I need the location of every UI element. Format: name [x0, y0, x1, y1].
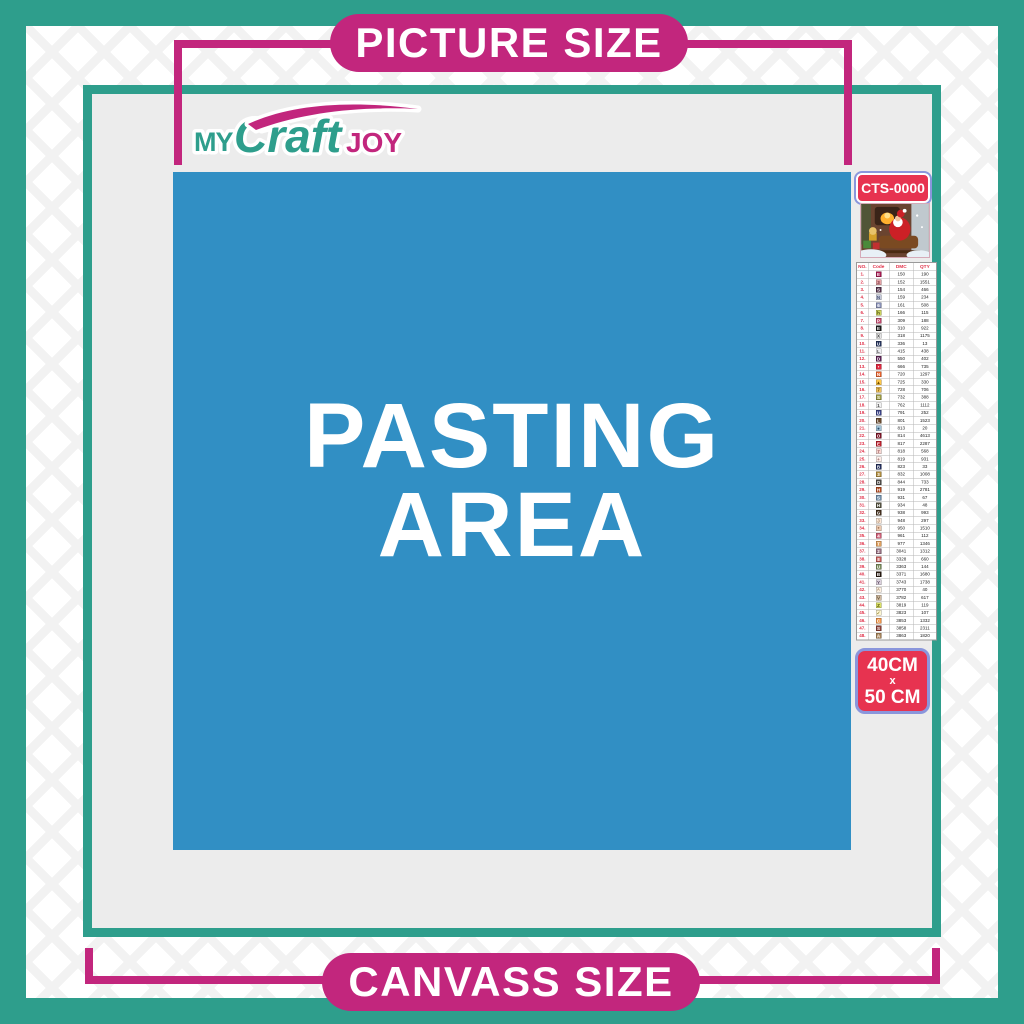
symbol-swatch: E — [876, 325, 882, 331]
col-header-no: NO. — [857, 263, 869, 271]
row-symbol-cell: S — [868, 394, 889, 402]
row-symbol-cell: N — [868, 294, 889, 302]
row-symbol-cell: * — [868, 524, 889, 532]
magenta-line-bottom-right-h — [698, 976, 940, 984]
dmc-table-row: 42. ^ 3770 40 — [857, 586, 937, 594]
col-header-code: Code — [868, 263, 889, 271]
row-symbol-cell: T — [868, 540, 889, 548]
symbol-swatch: Z — [876, 602, 882, 608]
row-dmc-code: 336 — [889, 340, 914, 348]
row-quantity: 48 — [914, 501, 937, 509]
dmc-table-row: 40. B 3371 1680 — [857, 571, 937, 579]
dmc-table-row: 13. • 666 735 — [857, 363, 937, 371]
row-quantity: 993 — [914, 509, 937, 517]
dmc-table-row: 19. U 791 252 — [857, 409, 937, 417]
dmc-table-row: 17. S 732 388 — [857, 394, 937, 402]
row-dmc-code: 720 — [889, 371, 914, 379]
row-quantity: 119 — [914, 601, 937, 609]
row-symbol-cell: U — [868, 563, 889, 571]
dmc-table-row: 35. 4 961 112 — [857, 532, 937, 540]
symbol-swatch: * — [876, 526, 882, 532]
row-symbol-cell: 6 — [868, 301, 889, 309]
row-symbol-cell: 7 — [868, 447, 889, 455]
pasting-area-line2: AREA — [378, 481, 647, 570]
symbol-swatch: T — [876, 541, 882, 547]
row-symbol-cell: S — [868, 286, 889, 294]
row-symbol-cell: L — [868, 347, 889, 355]
product-sheet: PICTURE SIZE CANVASS SIZE MY Craft JOY P… — [0, 0, 1024, 1024]
row-number: 24. — [857, 447, 869, 455]
symbol-swatch: + — [876, 456, 882, 462]
row-quantity: 466 — [914, 286, 937, 294]
symbol-swatch: 3 — [876, 279, 882, 285]
row-quantity: 1551 — [914, 278, 937, 286]
row-symbol-cell: C — [868, 617, 889, 625]
symbol-swatch: 4 — [876, 533, 882, 539]
row-number: 42. — [857, 586, 869, 594]
row-quantity: 660 — [914, 555, 937, 563]
dmc-table-row: 22. O 814 4613 — [857, 432, 937, 440]
dmc-table-row: 6. h 166 115 — [857, 309, 937, 317]
dmc-table-row: 7. P 309 188 — [857, 317, 937, 325]
row-number: 23. — [857, 440, 869, 448]
row-number: 45. — [857, 609, 869, 617]
row-number: 21. — [857, 424, 869, 432]
row-quantity: 922 — [914, 324, 937, 332]
row-number: 26. — [857, 463, 869, 471]
picture-size-label: PICTURE SIZE — [355, 19, 662, 67]
row-symbol-cell: 3 — [868, 278, 889, 286]
row-symbol-cell: H — [868, 486, 889, 494]
symbol-swatch: S — [876, 626, 882, 632]
row-quantity: 2287 — [914, 440, 937, 448]
row-number: 38. — [857, 555, 869, 563]
dmc-table-row: 14. N 720 1297 — [857, 371, 937, 379]
row-number: 2. — [857, 278, 869, 286]
row-quantity: 438 — [914, 347, 937, 355]
row-number: 28. — [857, 478, 869, 486]
canvass-size-banner: CANVASS SIZE — [322, 953, 700, 1011]
dmc-table-row: 11. L 415 438 — [857, 347, 937, 355]
row-quantity: 1297 — [914, 371, 937, 379]
row-quantity: 40 — [914, 586, 937, 594]
row-symbol-cell: • — [868, 363, 889, 371]
row-quantity: 112 — [914, 532, 937, 540]
row-symbol-cell: ● — [868, 424, 889, 432]
pasting-area-line1: PASTING — [304, 392, 720, 481]
dmc-table-row: 41. Y 3743 1738 — [857, 578, 937, 586]
size-height-label: 50 CM — [865, 688, 921, 707]
row-dmc-code: 950 — [889, 524, 914, 532]
row-dmc-code: 934 — [889, 501, 914, 509]
row-dmc-code: 813 — [889, 424, 914, 432]
row-symbol-cell: L — [868, 417, 889, 425]
dmc-table-row: 39. U 3363 144 — [857, 563, 937, 571]
row-dmc-code: 732 — [889, 394, 914, 402]
row-symbol-cell: S — [868, 624, 889, 632]
row-quantity: 508 — [914, 301, 937, 309]
row-number: 33. — [857, 517, 869, 525]
row-number: 34. — [857, 524, 869, 532]
row-dmc-code: 814 — [889, 432, 914, 440]
magenta-line-top-left-v — [174, 40, 182, 165]
row-quantity: 1523 — [914, 417, 937, 425]
logo-text-joy: JOY — [346, 127, 402, 158]
symbol-swatch: Y — [876, 579, 882, 585]
row-symbol-cell: E — [868, 440, 889, 448]
magenta-line-bottom-right-v — [932, 948, 940, 984]
dmc-table-row: 9. X 318 1175 — [857, 332, 937, 340]
row-symbol-cell: ▲ — [868, 378, 889, 386]
row-number: 22. — [857, 432, 869, 440]
symbol-swatch: 7 — [876, 387, 882, 393]
symbol-swatch: N — [876, 295, 882, 301]
dmc-table-row: 21. ● 813 20 — [857, 424, 937, 432]
symbol-swatch: A — [876, 633, 882, 639]
symbol-swatch: C — [876, 618, 882, 624]
dmc-table: NO. Code DMC QTY 1. E 150 190 2. 3 152 1… — [856, 262, 937, 640]
dmc-table-row: 18. 1 762 1112 — [857, 401, 937, 409]
row-number: 37. — [857, 548, 869, 556]
symbol-swatch: X — [876, 333, 882, 339]
row-quantity: 1680 — [914, 571, 937, 579]
row-dmc-code: 3371 — [889, 571, 914, 579]
row-quantity: 234 — [914, 294, 937, 302]
row-number: 18. — [857, 401, 869, 409]
row-dmc-code: 844 — [889, 478, 914, 486]
symbol-swatch: P — [876, 318, 882, 324]
row-dmc-code: 3823 — [889, 609, 914, 617]
row-number: 14. — [857, 371, 869, 379]
row-number: 32. — [857, 509, 869, 517]
dmc-table-row: 15. ▲ 725 330 — [857, 378, 937, 386]
row-number: 31. — [857, 501, 869, 509]
color-chart: NO. Code DMC QTY 1. E 150 190 2. 3 152 1… — [856, 262, 936, 646]
symbol-swatch: B — [876, 464, 882, 470]
magenta-line-bottom-left-h — [85, 976, 324, 984]
row-number: 15. — [857, 378, 869, 386]
row-quantity: 1332 — [914, 617, 937, 625]
row-symbol-cell: X — [868, 332, 889, 340]
row-quantity: 190 — [914, 271, 937, 279]
logo-text-my: MY — [194, 127, 233, 157]
dmc-table-row: 36. T 977 1346 — [857, 540, 937, 548]
symbol-swatch: ▲ — [876, 379, 882, 385]
dmc-table-row: 4. N 159 234 — [857, 294, 937, 302]
symbol-swatch: ● — [876, 426, 882, 432]
dmc-table-row: 26. B 823 33 — [857, 463, 937, 471]
dmc-table-row: 24. 7 818 568 — [857, 447, 937, 455]
row-dmc-code: 3363 — [889, 563, 914, 571]
row-dmc-code: 791 — [889, 409, 914, 417]
row-symbol-cell: S — [868, 494, 889, 502]
row-symbol-cell: h — [868, 309, 889, 317]
dmc-table-row: 10. U 336 13 — [857, 340, 937, 348]
row-symbol-cell: + — [868, 455, 889, 463]
row-dmc-code: 3770 — [889, 586, 914, 594]
dmc-table-row: 45. ✓ 3823 107 — [857, 609, 937, 617]
row-symbol-cell: U — [868, 409, 889, 417]
symbol-swatch: ^ — [876, 587, 882, 593]
symbol-swatch: 7 — [876, 449, 882, 455]
col-header-dmc: DMC — [889, 263, 914, 271]
row-symbol-cell: A — [868, 632, 889, 640]
row-number: 44. — [857, 601, 869, 609]
row-symbol-cell: Z — [868, 601, 889, 609]
row-dmc-code: 166 — [889, 309, 914, 317]
row-dmc-code: 832 — [889, 471, 914, 479]
dmc-table-row: 31. H 934 48 — [857, 501, 937, 509]
symbol-swatch: S — [876, 287, 882, 293]
row-symbol-cell: ^ — [868, 586, 889, 594]
row-symbol-cell: Y — [868, 578, 889, 586]
row-quantity: 330 — [914, 378, 937, 386]
row-dmc-code: 823 — [889, 463, 914, 471]
symbol-swatch: U — [876, 564, 882, 570]
row-quantity: 1312 — [914, 548, 937, 556]
row-quantity: 252 — [914, 409, 937, 417]
row-quantity: 2311 — [914, 624, 937, 632]
row-symbol-cell: 4 — [868, 532, 889, 540]
row-dmc-code: 3863 — [889, 632, 914, 640]
canvass-size-label: CANVASS SIZE — [348, 958, 673, 1006]
row-symbol-cell: P — [868, 317, 889, 325]
row-symbol-cell: 3 — [868, 471, 889, 479]
row-quantity: 1820 — [914, 632, 937, 640]
symbol-swatch: S — [876, 495, 882, 501]
row-quantity: 144 — [914, 563, 937, 571]
row-quantity: 2781 — [914, 486, 937, 494]
dmc-table-row: 3. S 154 466 — [857, 286, 937, 294]
row-number: 30. — [857, 494, 869, 502]
row-number: 6. — [857, 309, 869, 317]
row-number: 39. — [857, 563, 869, 571]
row-dmc-code: 919 — [889, 486, 914, 494]
dmc-table-row: 8. E 310 922 — [857, 324, 937, 332]
symbol-swatch: U — [876, 341, 882, 347]
picture-size-banner: PICTURE SIZE — [330, 14, 688, 72]
row-number: 10. — [857, 340, 869, 348]
dmc-table-row: 46. C 3853 1332 — [857, 617, 937, 625]
symbol-swatch: O — [876, 479, 882, 485]
row-number: 27. — [857, 471, 869, 479]
row-quantity: 67 — [914, 494, 937, 502]
row-quantity: 733 — [914, 478, 937, 486]
symbol-swatch: V — [876, 595, 882, 601]
row-symbol-cell: V — [868, 594, 889, 602]
row-dmc-code: 762 — [889, 401, 914, 409]
dmc-table-row: 16. 7 728 706 — [857, 386, 937, 394]
symbol-swatch: U — [876, 410, 882, 416]
row-number: 12. — [857, 355, 869, 363]
symbol-swatch: B — [876, 572, 882, 578]
row-symbol-cell: N — [868, 371, 889, 379]
row-symbol-cell: D — [868, 355, 889, 363]
row-number: 17. — [857, 394, 869, 402]
row-symbol-cell: G — [868, 509, 889, 517]
row-quantity: 568 — [914, 447, 937, 455]
symbol-swatch: N — [876, 372, 882, 378]
row-dmc-code: 152 — [889, 278, 914, 286]
row-symbol-cell: E — [868, 324, 889, 332]
row-symbol-cell: E — [868, 271, 889, 279]
row-quantity: 4613 — [914, 432, 937, 440]
dmc-table-row: 12. D 550 402 — [857, 355, 937, 363]
row-number: 40. — [857, 571, 869, 579]
symbol-swatch: 2 — [876, 549, 882, 555]
dmc-table-row: 23. E 817 2287 — [857, 440, 937, 448]
dmc-table-row: 33. J 948 297 — [857, 517, 937, 525]
row-symbol-cell: B — [868, 463, 889, 471]
row-dmc-code: 161 — [889, 301, 914, 309]
row-number: 43. — [857, 594, 869, 602]
row-quantity: 115 — [914, 309, 937, 317]
row-number: 5. — [857, 301, 869, 309]
row-quantity: 1112 — [914, 401, 937, 409]
row-symbol-cell: 7 — [868, 386, 889, 394]
symbol-swatch: H — [876, 487, 882, 493]
symbol-swatch: E — [876, 441, 882, 447]
row-symbol-cell: H — [868, 501, 889, 509]
row-quantity: 1510 — [914, 524, 937, 532]
row-dmc-code: 938 — [889, 509, 914, 517]
dmc-table-row: 5. 6 161 508 — [857, 301, 937, 309]
row-dmc-code: 819 — [889, 455, 914, 463]
row-number: 36. — [857, 540, 869, 548]
row-quantity: 13 — [914, 340, 937, 348]
magenta-line-top-right-h — [686, 40, 852, 48]
symbol-swatch: H — [876, 502, 882, 508]
symbol-swatch: O — [876, 433, 882, 439]
symbol-swatch: G — [876, 510, 882, 516]
row-quantity: 706 — [914, 386, 937, 394]
row-number: 8. — [857, 324, 869, 332]
row-dmc-code: 961 — [889, 532, 914, 540]
row-dmc-code: 310 — [889, 324, 914, 332]
row-dmc-code: 3743 — [889, 578, 914, 586]
row-quantity: 20 — [914, 424, 937, 432]
symbol-swatch: L — [876, 418, 882, 424]
dmc-table-row: 25. + 819 931 — [857, 455, 937, 463]
row-dmc-code: 728 — [889, 386, 914, 394]
row-dmc-code: 801 — [889, 417, 914, 425]
row-dmc-code: 3819 — [889, 601, 914, 609]
row-quantity: 617 — [914, 594, 937, 602]
dmc-table-row: 30. S 931 67 — [857, 494, 937, 502]
row-symbol-cell: O — [868, 432, 889, 440]
row-number: 25. — [857, 455, 869, 463]
magenta-line-top-left-h — [174, 40, 332, 48]
row-symbol-cell: B — [868, 571, 889, 579]
row-quantity: 297 — [914, 517, 937, 525]
row-quantity: 735 — [914, 363, 937, 371]
row-dmc-code: 3041 — [889, 548, 914, 556]
row-number: 19. — [857, 409, 869, 417]
row-quantity: 1175 — [914, 332, 937, 340]
row-number: 13. — [857, 363, 869, 371]
row-quantity: 931 — [914, 455, 937, 463]
row-dmc-code: 159 — [889, 294, 914, 302]
row-quantity: 1738 — [914, 578, 937, 586]
row-dmc-code: 309 — [889, 317, 914, 325]
row-dmc-code: 818 — [889, 447, 914, 455]
row-dmc-code: 550 — [889, 355, 914, 363]
row-number: 41. — [857, 578, 869, 586]
row-dmc-code: 415 — [889, 347, 914, 355]
dmc-table-row: 48. A 3863 1820 — [857, 632, 937, 640]
row-dmc-code: 150 — [889, 271, 914, 279]
row-symbol-cell: 2 — [868, 548, 889, 556]
symbol-swatch: 6 — [876, 302, 882, 308]
row-number: 11. — [857, 347, 869, 355]
dmc-table-row: 27. 3 832 1008 — [857, 471, 937, 479]
symbol-swatch: L — [876, 349, 882, 355]
dmc-table-row: 38. 8 3328 660 — [857, 555, 937, 563]
row-dmc-code: 3782 — [889, 594, 914, 602]
row-quantity: 388 — [914, 394, 937, 402]
symbol-swatch: E — [876, 272, 882, 278]
symbol-swatch: 8 — [876, 556, 882, 562]
row-number: 1. — [857, 271, 869, 279]
row-quantity: 188 — [914, 317, 937, 325]
dmc-table-body: 1. E 150 190 2. 3 152 1551 3. S 154 466 … — [857, 271, 937, 640]
dmc-table-row: 28. O 844 733 — [857, 478, 937, 486]
row-number: 4. — [857, 294, 869, 302]
row-number: 35. — [857, 532, 869, 540]
dmc-table-row: 1. E 150 190 — [857, 271, 937, 279]
row-dmc-code: 154 — [889, 286, 914, 294]
kit-artwork-thumbnail — [860, 203, 930, 258]
row-dmc-code: 318 — [889, 332, 914, 340]
row-number: 9. — [857, 332, 869, 340]
symbol-swatch: 1 — [876, 402, 882, 408]
row-dmc-code: 948 — [889, 517, 914, 525]
row-number: 29. — [857, 486, 869, 494]
sku-label: CTS-0000 — [861, 180, 925, 196]
row-quantity: 107 — [914, 609, 937, 617]
dmc-table-row: 32. G 938 993 — [857, 509, 937, 517]
symbol-swatch: h — [876, 310, 882, 316]
row-dmc-code: 666 — [889, 363, 914, 371]
symbol-swatch: S — [876, 395, 882, 401]
size-badge: 40CM x 50 CM — [855, 648, 930, 714]
row-dmc-code: 977 — [889, 540, 914, 548]
row-number: 47. — [857, 624, 869, 632]
col-header-qty: QTY — [914, 263, 937, 271]
size-width-label: 40CM — [867, 656, 918, 675]
row-symbol-cell: 1 — [868, 401, 889, 409]
sku-badge: CTS-0000 — [856, 173, 930, 203]
dmc-table-row: 43. V 3782 617 — [857, 594, 937, 602]
dmc-table-header-row: NO. Code DMC QTY — [857, 263, 937, 271]
symbol-swatch: 3 — [876, 472, 882, 478]
row-symbol-cell: J — [868, 517, 889, 525]
row-quantity: 1008 — [914, 471, 937, 479]
row-symbol-cell: ✓ — [868, 609, 889, 617]
row-quantity: 33 — [914, 463, 937, 471]
row-dmc-code: 3858 — [889, 624, 914, 632]
dmc-table-row: 37. 2 3041 1312 — [857, 548, 937, 556]
row-number: 7. — [857, 317, 869, 325]
row-number: 46. — [857, 617, 869, 625]
magenta-line-bottom-left-v — [85, 948, 93, 984]
dmc-table-row: 44. Z 3819 119 — [857, 601, 937, 609]
symbol-swatch: ✓ — [876, 610, 882, 616]
dmc-table-row: 2. 3 152 1551 — [857, 278, 937, 286]
mycraftjoy-logo: MY Craft JOY — [186, 94, 426, 168]
row-number: 20. — [857, 417, 869, 425]
row-dmc-code: 817 — [889, 440, 914, 448]
